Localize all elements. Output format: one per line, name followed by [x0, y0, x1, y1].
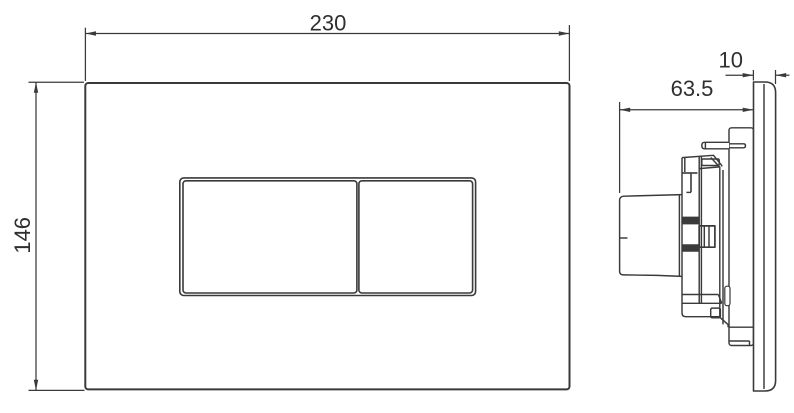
- svg-text:146: 146: [10, 217, 35, 254]
- svg-text:63.5: 63.5: [671, 76, 714, 101]
- svg-text:10: 10: [719, 48, 743, 73]
- svg-text:230: 230: [310, 11, 347, 36]
